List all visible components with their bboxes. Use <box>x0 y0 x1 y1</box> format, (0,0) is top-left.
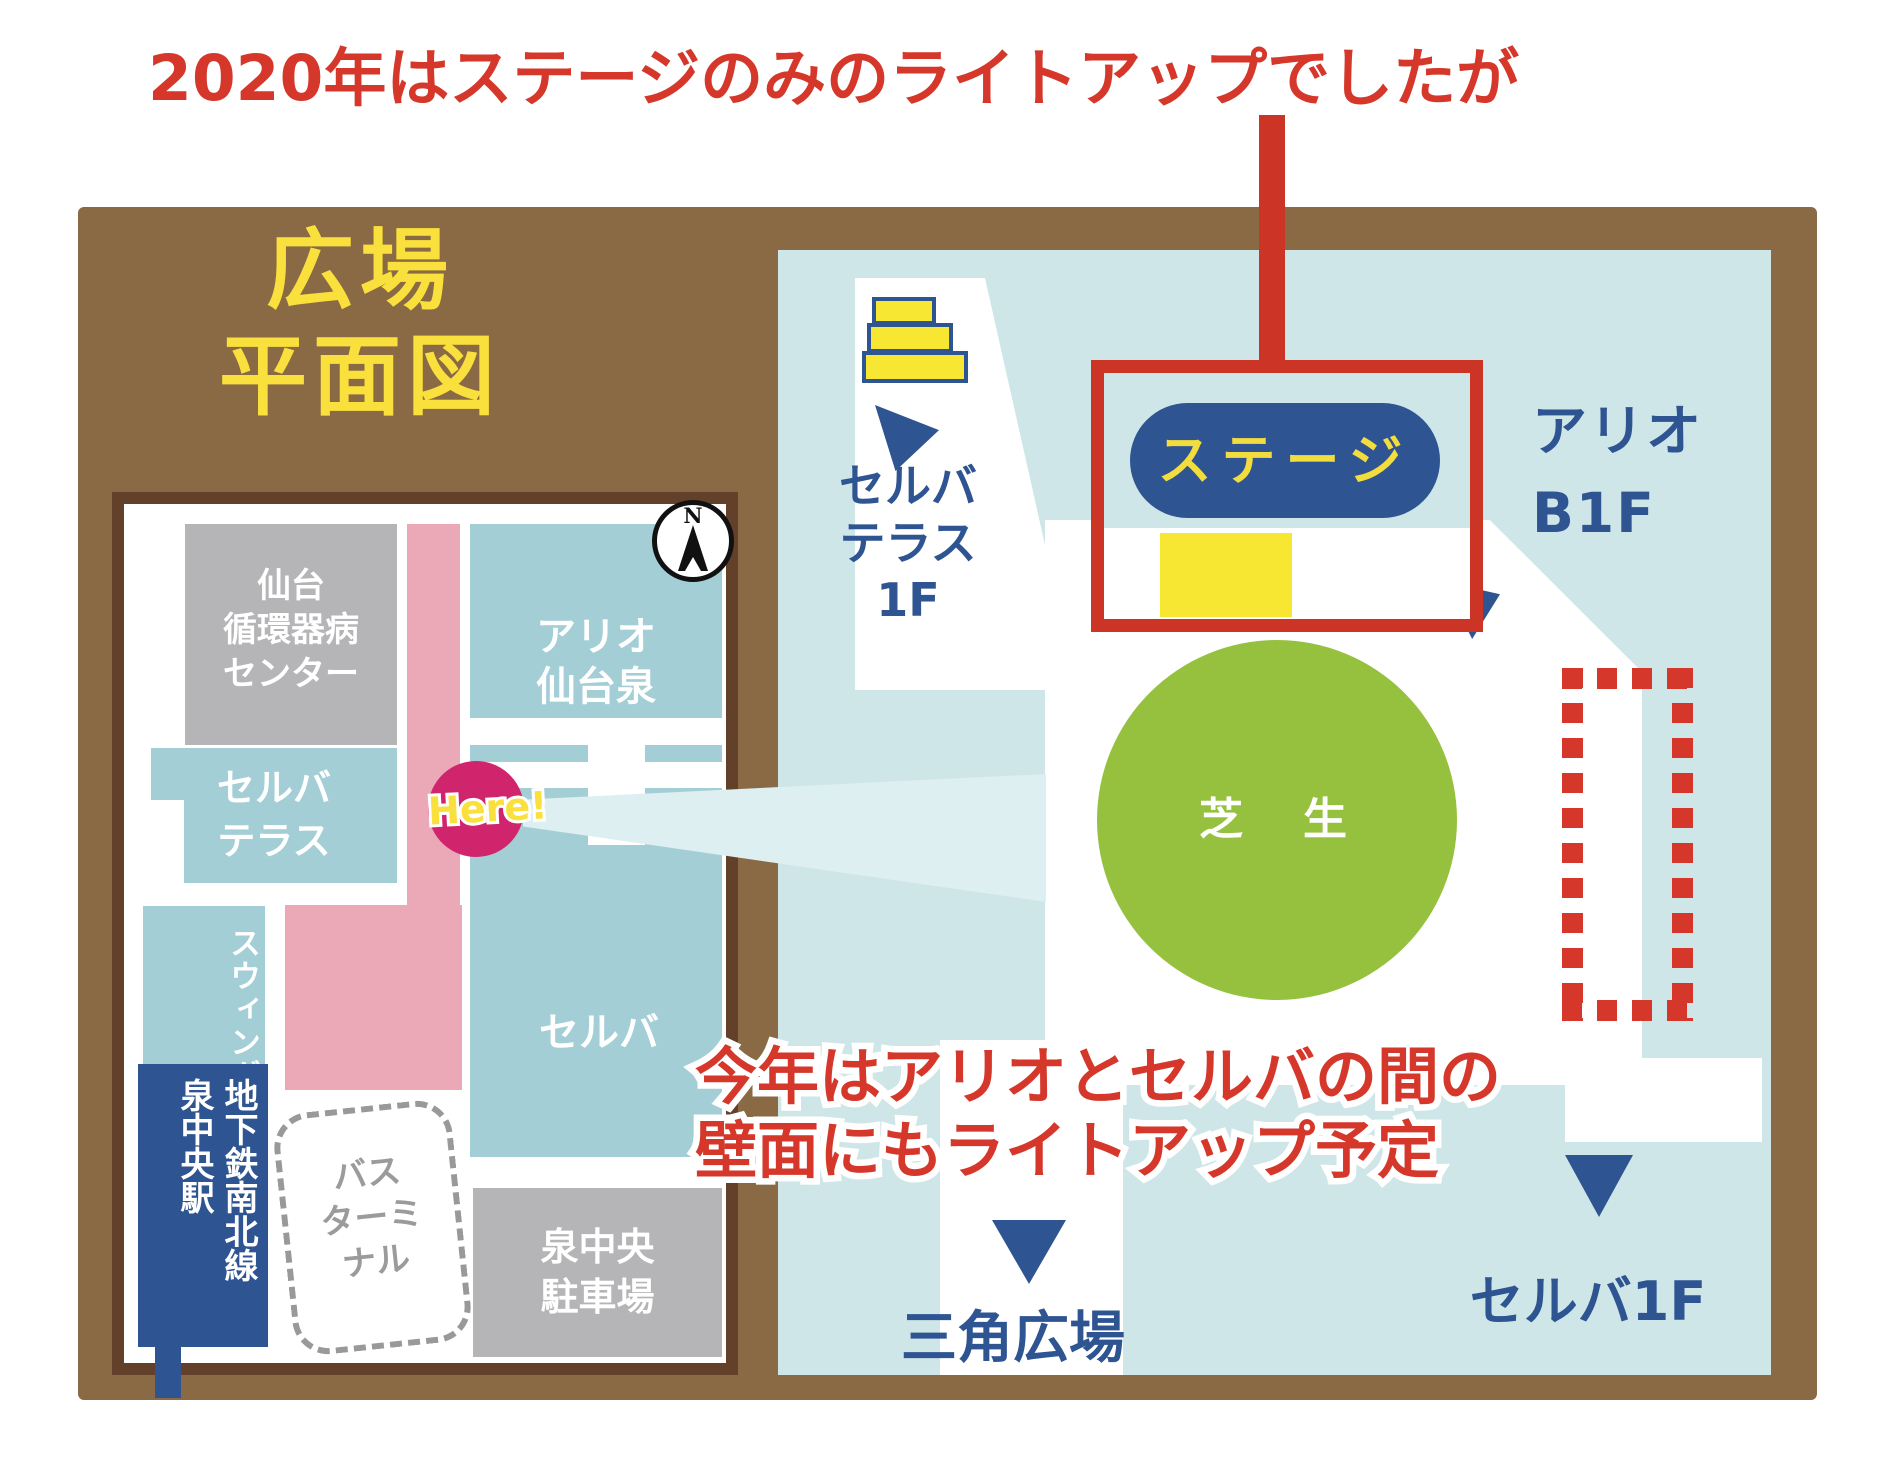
selva-terrace-label: セルバ テラス <box>151 762 397 868</box>
stage-yellow-rect <box>1160 533 1292 617</box>
pink-path-block <box>285 905 462 1090</box>
selva-entrance-notch <box>1565 1058 1762 1142</box>
sankaku-label: 三角広場 <box>873 1293 1153 1374</box>
stage-highlight-box: ステージ <box>1091 360 1483 632</box>
stage-label: ステージ <box>1130 403 1440 518</box>
hospital-block: 仙台 循環器病 センター <box>185 524 397 745</box>
selva1f-pointer-icon <box>1565 1155 1633 1217</box>
annotation-thisyear: 今年はアリオとセルバの間の 壁面にもライトアップ予定 <box>695 1040 1501 1188</box>
parking-block: 泉中央 駐車場 <box>473 1188 722 1357</box>
stairs-icon <box>862 297 968 383</box>
lawn-circle: 芝 生 <box>1097 640 1457 1000</box>
compass-needle-notch <box>685 557 701 571</box>
legend-title: 広場 平面図 <box>178 218 542 430</box>
callout-line <box>1259 115 1285 373</box>
selva-1f-label: セルバ1F <box>1438 1257 1738 1336</box>
lightup-wall-dashed <box>1562 668 1693 1021</box>
bus-terminal: バス ターミ ナル <box>271 1097 474 1357</box>
subway-station-block: 地下鉄南北線 泉中央駅 <box>138 1064 268 1347</box>
terrace-1f-label: セルバ テラス 1F <box>808 458 1008 629</box>
ario-b1f-label: アリオ B1F <box>1532 390 1703 554</box>
compass-icon: N <box>652 500 734 582</box>
selva-label: セルバ <box>524 1000 674 1058</box>
subway-stub <box>155 1345 181 1398</box>
annotation-2020: 2020年はステージのみのライトアップでしたが <box>148 28 1519 119</box>
area-map: 仙台 循環器病 センター アリオ 仙台泉 セルバ セルバ テラス スウィング 地… <box>112 492 738 1375</box>
